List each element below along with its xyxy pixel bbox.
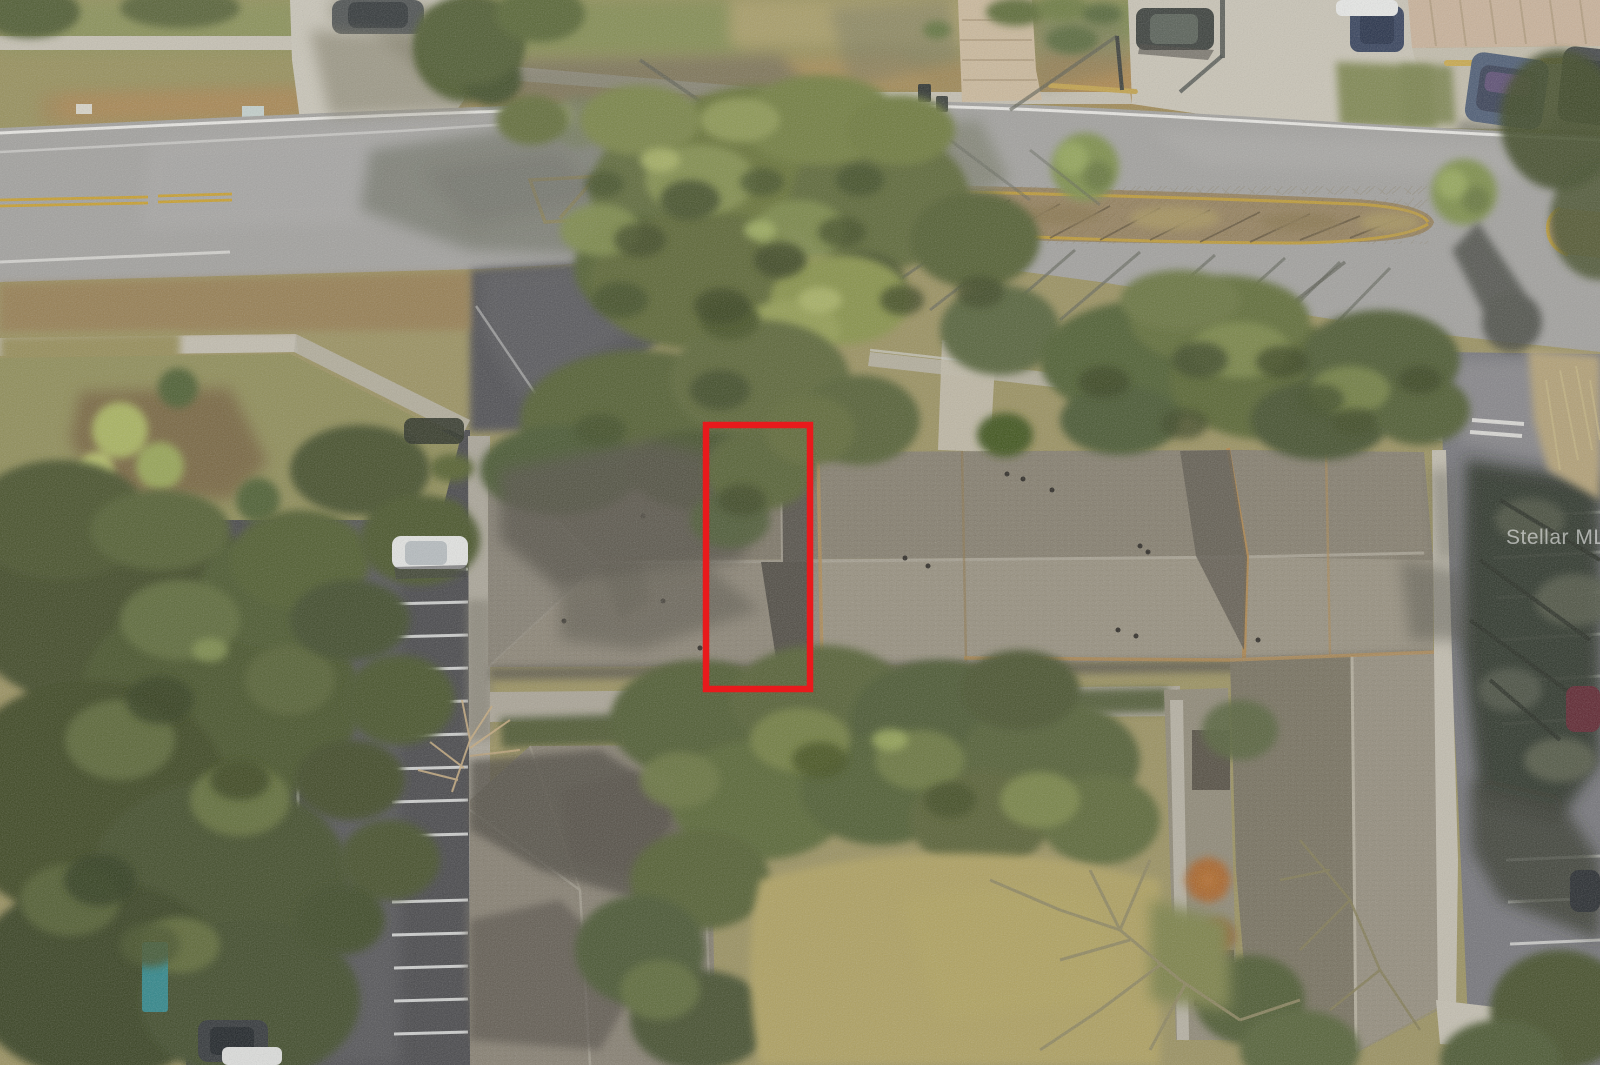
svg-text:Stellar MLS: Stellar MLS [1506, 526, 1600, 549]
